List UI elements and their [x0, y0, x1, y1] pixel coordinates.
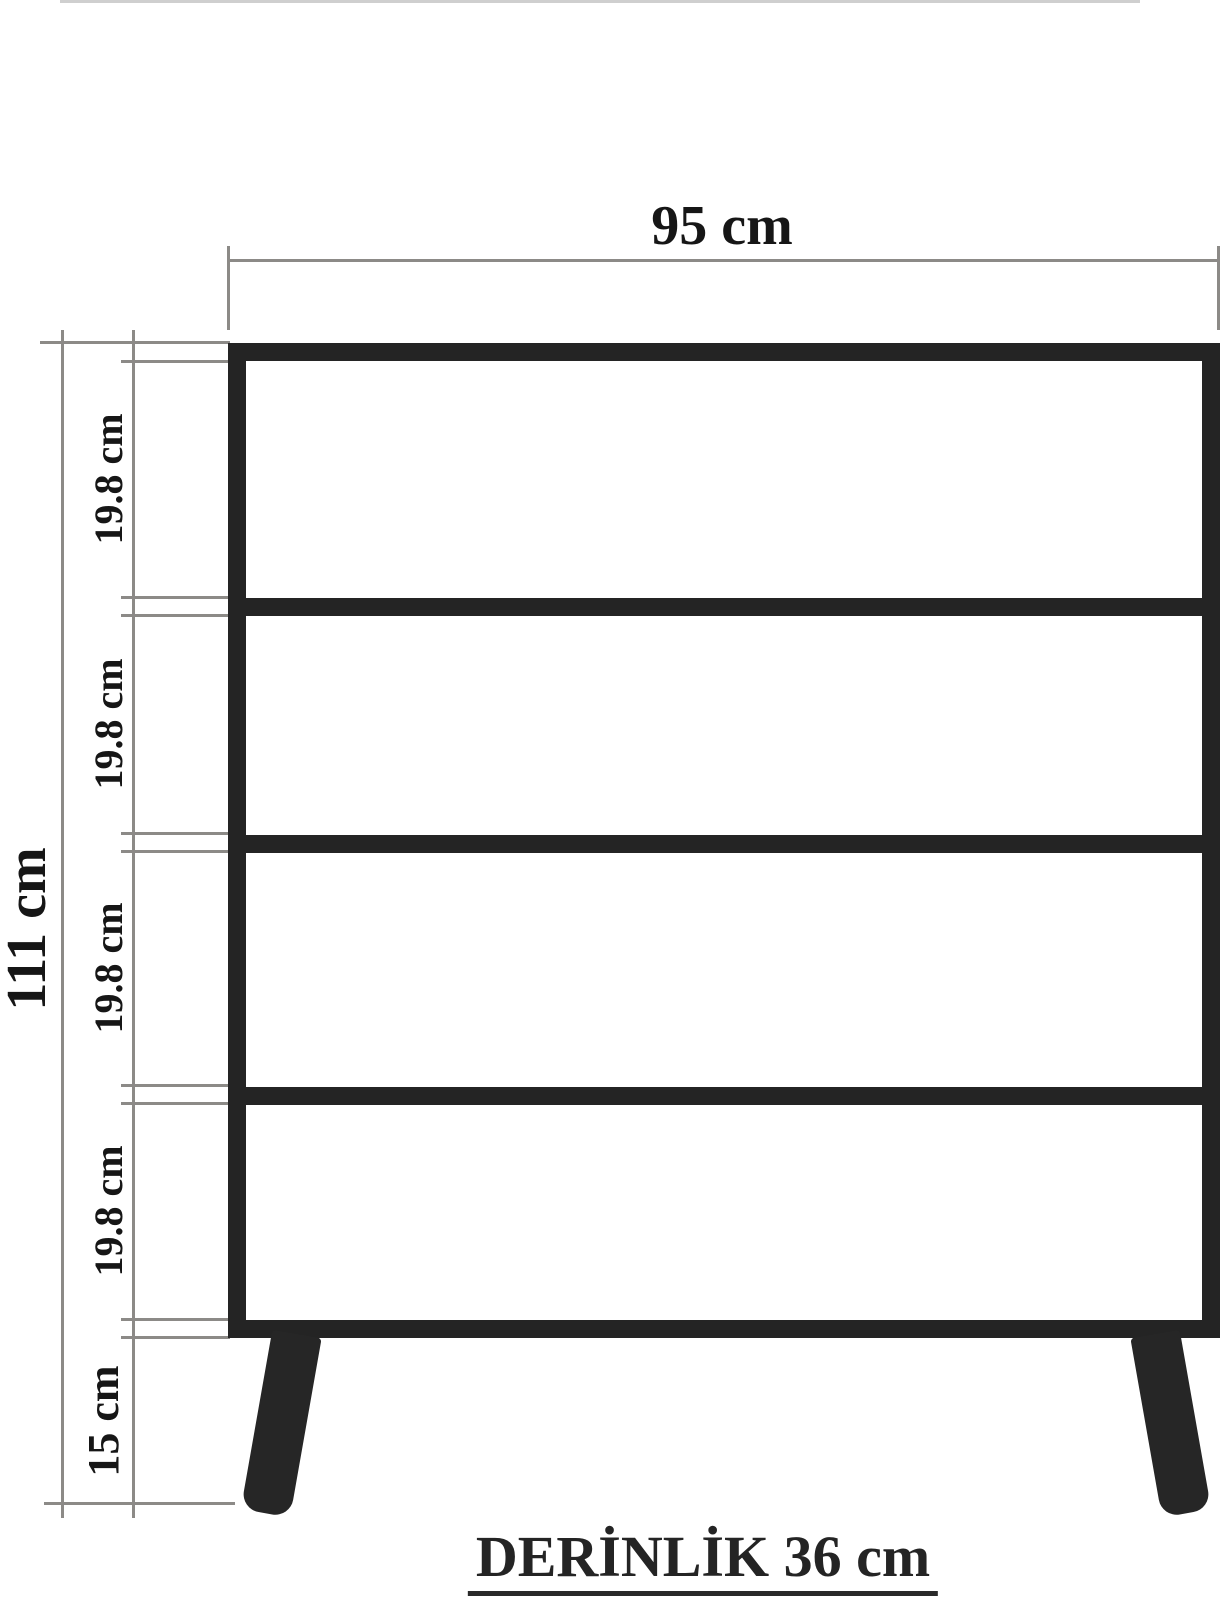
width-dimension-line [228, 259, 1220, 262]
depth-label: DERİNLİK 36 cm [468, 1528, 938, 1596]
drawer3-height-label: 19.8 cm [89, 902, 129, 1033]
dimension-tick [121, 1318, 230, 1321]
dimension-tick [121, 1084, 230, 1087]
drawer-divider-3 [244, 1087, 1204, 1105]
dimension-tick [121, 832, 230, 835]
leg-height-label: 15 cm [82, 1365, 126, 1476]
dimension-tick [121, 596, 230, 599]
top-crop-line [60, 0, 1140, 3]
dimension-tick [121, 360, 230, 363]
dimension-tick [40, 341, 230, 344]
dimension-tick [121, 614, 230, 617]
drawer-divider-1 [244, 598, 1204, 616]
drawer1-height-label: 19.8 cm [89, 413, 129, 544]
drawer2-height-label: 19.8 cm [89, 658, 129, 789]
dimension-tick [121, 1336, 230, 1339]
total-height-label: 111 cm [0, 847, 55, 1010]
cabinet-right-panel [1202, 343, 1220, 1338]
drawer4-height-label: 19.8 cm [89, 1145, 129, 1276]
cabinet-leg-right [1130, 1330, 1211, 1518]
drawer-divider-2 [244, 835, 1204, 853]
dimension-tick [121, 1102, 230, 1105]
total-height-dimension-line [61, 330, 64, 1518]
cabinet-top-panel [228, 343, 1220, 361]
dimension-diagram: 95 cm 111 cm 19.8 cm 19.8 cm 19.8 cm 19.… [0, 0, 1230, 1600]
width-dimension-tick-right [1217, 246, 1220, 330]
dimension-tick-ground [44, 1502, 235, 1505]
width-dimension-label: 95 cm [651, 198, 793, 254]
section-height-dimension-line [132, 330, 135, 1518]
width-dimension-tick-left [227, 246, 230, 330]
cabinet-bottom-panel [228, 1320, 1220, 1338]
dimension-tick [121, 850, 230, 853]
cabinet-leg-left [241, 1330, 322, 1518]
